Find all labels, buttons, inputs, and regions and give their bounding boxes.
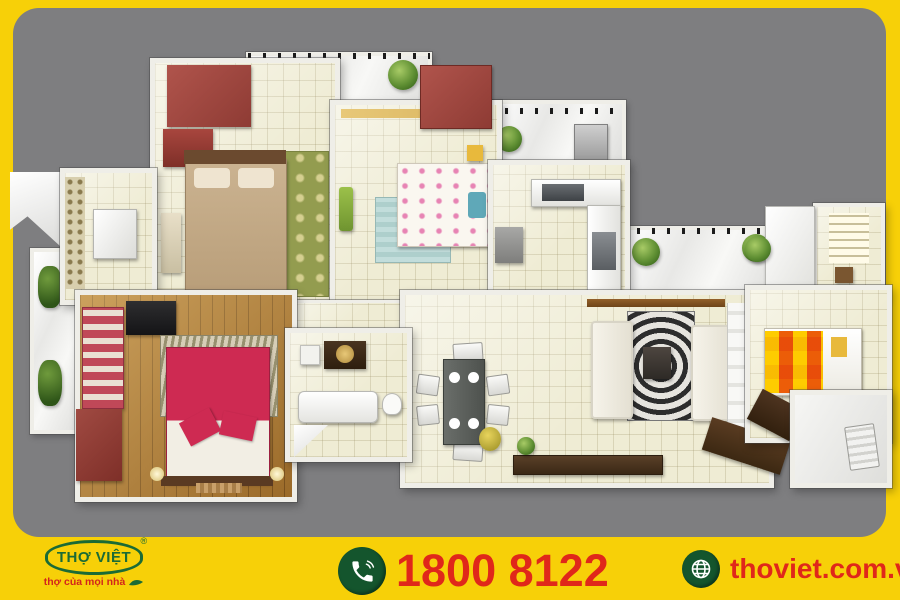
patterned-wall-strip [65, 177, 85, 289]
cabinet-white-right [765, 206, 815, 288]
bathtub [298, 391, 378, 423]
balcony-left-plant-top-icon [38, 266, 62, 308]
kitchen-counter-top [531, 179, 621, 207]
dining-chair-right-2 [486, 404, 510, 426]
living-dining-room [400, 290, 774, 488]
phone-number: 1800 8122 [396, 545, 609, 597]
right-wing-plant-icon [745, 236, 771, 262]
bed-tan [185, 159, 287, 301]
toilet [382, 393, 402, 415]
dining-plate-1 [449, 372, 460, 383]
bed-tan-pillow-right [238, 168, 274, 188]
bathroom-left [60, 168, 157, 305]
phone-contact: 1800 8122 [338, 545, 609, 597]
vanity-dark [324, 341, 366, 369]
study-right [790, 390, 892, 488]
washer [574, 124, 608, 162]
round-basin [336, 345, 354, 363]
logo-oval: THỢ VIỆT ® [45, 540, 143, 575]
kitchen-oven [592, 232, 616, 270]
vanity-stool [161, 213, 181, 273]
logo-tagline: thợ của mọi nhà [34, 576, 154, 588]
logo-text: THỢ VIỆT [57, 549, 131, 566]
balcony-top-plant-right-icon [388, 60, 418, 90]
wood-ledge [587, 299, 725, 307]
bed-master-pillow-right [219, 411, 257, 442]
wall-cabinet-small [300, 345, 320, 365]
bed-master-pillow-left [179, 408, 221, 447]
bed-orange-pillow [831, 337, 847, 357]
master-bedroom [75, 290, 297, 502]
dining-chair-left-1 [416, 374, 441, 397]
globe-icon [682, 550, 720, 588]
bathroom-window [829, 213, 869, 263]
wardrobe-maroon-1 [167, 65, 251, 127]
bedroom-top-middle [330, 100, 502, 317]
brand-logo: THỢ VIỆT ® thợ của mọi nhà [34, 540, 154, 588]
study-chair [844, 423, 880, 471]
nightstand-yellow [467, 145, 483, 161]
bench-green [339, 187, 353, 231]
light-panel [10, 172, 60, 246]
kitchen-sink [542, 184, 584, 201]
wardrobe-maroon-2 [420, 65, 492, 129]
bed-floral [397, 163, 493, 247]
bedroom-top-left [150, 58, 340, 310]
balcony-right-railing [622, 228, 776, 234]
bed-orange-checker [765, 331, 823, 393]
dining-plate-4 [468, 418, 479, 429]
dining-plate-2 [468, 372, 479, 383]
website-contact: thoviet.com.vn [682, 550, 900, 588]
bed-tan-pillow-left [194, 168, 230, 188]
bathroom-stool [835, 267, 853, 283]
bathroom-center [285, 328, 412, 462]
tv-console [513, 455, 663, 475]
bedside-lamp-right-icon [270, 467, 284, 481]
kitchen-counter-side [587, 205, 621, 295]
website-url: thoviet.com.vn [730, 553, 900, 585]
wardrobe-maroon-master [76, 409, 122, 481]
floor-mat [196, 483, 242, 493]
floorplan-canvas [13, 8, 886, 537]
bed-orange-base [764, 328, 862, 396]
tv-unit-black [126, 301, 176, 335]
bed-floral-pillow [468, 192, 486, 218]
dining-table [443, 359, 485, 445]
bed-master [166, 347, 270, 483]
console-plant-icon [517, 437, 535, 455]
balcony-left-plant-bottom-icon [38, 360, 62, 406]
dining-plate-3 [449, 418, 460, 429]
floor-plant-yellow-icon [479, 427, 501, 451]
registered-mark: ® [141, 536, 148, 546]
phone-icon [338, 547, 386, 595]
tagline-flourish-icon [128, 577, 144, 587]
coffee-table [643, 347, 671, 379]
sofa-left [591, 321, 633, 419]
tagline-text: thợ của mọi nhà [44, 576, 126, 588]
bathroom-left-cabinet [93, 209, 137, 259]
bed-tan-headboard [184, 150, 286, 164]
utility-balcony-railing [490, 108, 624, 114]
bathroom-door [294, 425, 328, 457]
dining-chair-right-1 [486, 374, 511, 397]
footer-bar: THỢ VIỆT ® thợ của mọi nhà 1800 8122 tho… [0, 537, 900, 600]
kitchen [488, 160, 630, 308]
dining-chair-left-2 [416, 404, 440, 426]
bedside-lamp-left-icon [150, 467, 164, 481]
kitchen-cabinet-gray [495, 227, 523, 263]
sofa-striped-red [82, 307, 124, 409]
balcony-right-plant-left-icon [632, 238, 660, 266]
